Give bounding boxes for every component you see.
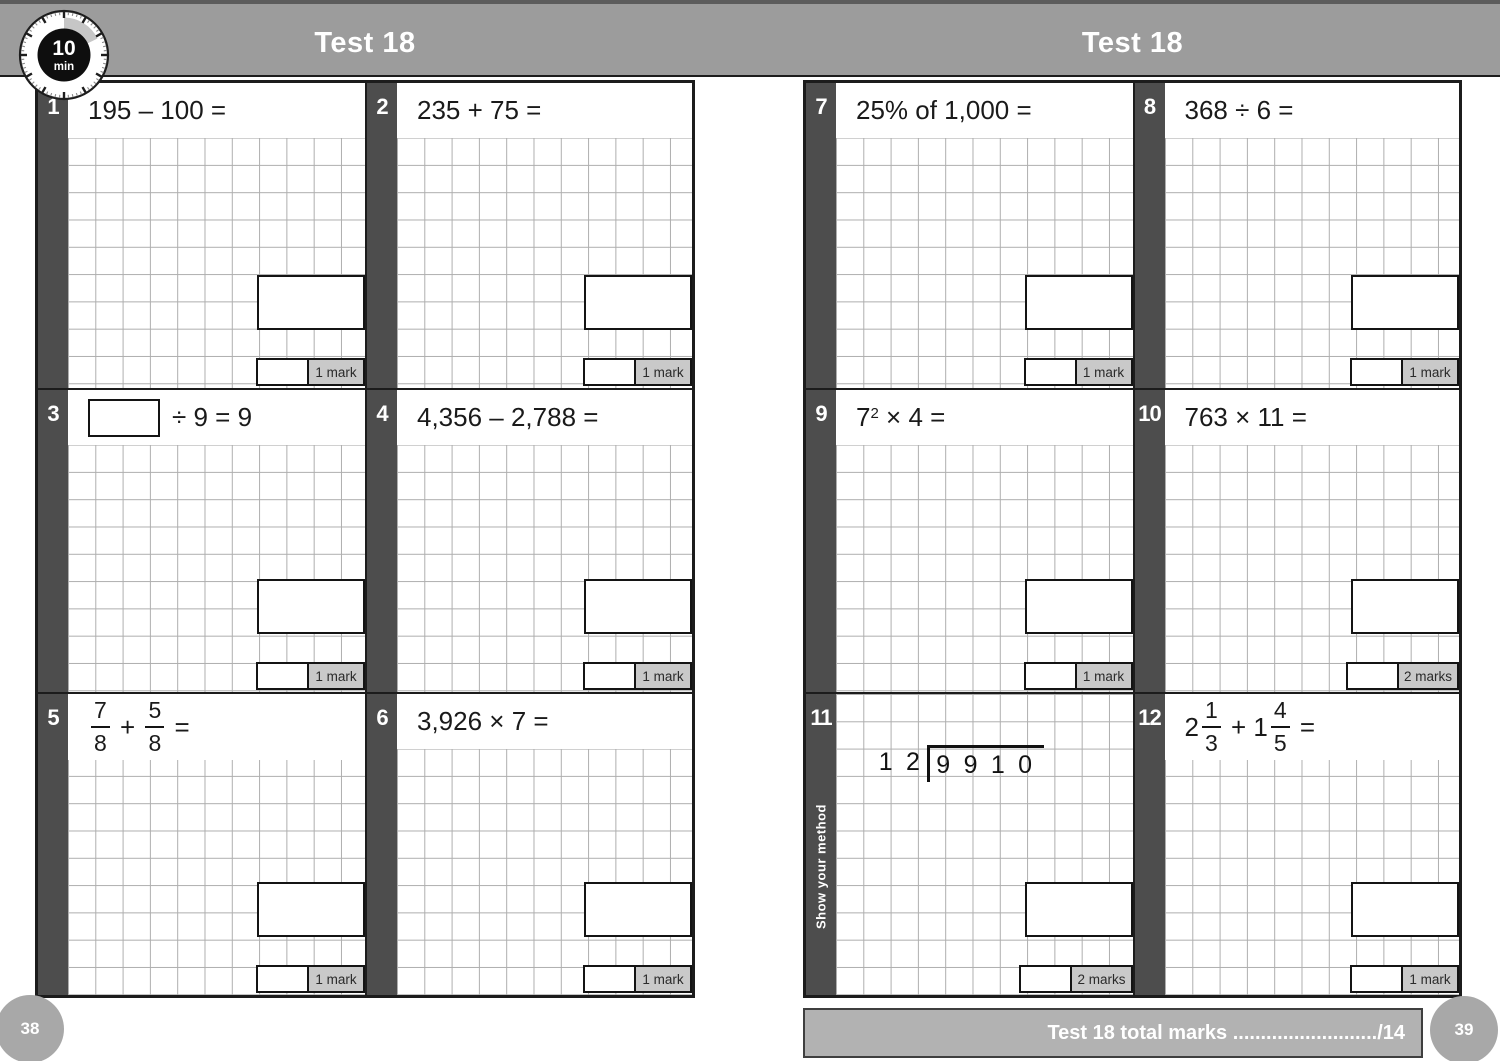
question-text-part: 4,356 – 2,788 = — [417, 402, 598, 433]
question-text-part: 72 — [856, 402, 879, 433]
mark-row: 1 mark — [256, 965, 365, 993]
side-label: Show your method — [814, 804, 829, 929]
fraction: 45 — [1271, 699, 1290, 755]
question-text-part: + — [113, 712, 143, 743]
question-cell-3: 3 ÷ 9 = 9 1 mark — [38, 388, 365, 692]
mark-label: 1 mark — [1077, 662, 1133, 690]
mark-label: 2 marks — [1072, 965, 1132, 993]
workbook-spread: Test 18 Test 18 10 min 1 195 – 100 = 1 m… — [0, 0, 1500, 1061]
dividend-digit: 1 — [984, 748, 1011, 782]
question-number-bar: 4 — [367, 390, 397, 692]
question-number: 8 — [1135, 83, 1165, 120]
answer-box[interactable] — [1351, 882, 1459, 937]
question-content: 235 + 75 = 1 mark — [397, 83, 692, 388]
test-title-right: Test 18 — [803, 27, 1462, 60]
question-text: 195 – 100 = — [68, 83, 365, 138]
question-cell-1: 1 195 – 100 = 1 mark — [38, 83, 365, 388]
question-content: 213 + 145 = 1 mark — [1165, 694, 1460, 995]
page-number-left: 38 — [0, 995, 64, 1061]
question-cell-2: 2 235 + 75 = 1 mark — [365, 83, 692, 388]
question-cell-9: 9 72 × 4 = 1 mark — [806, 388, 1133, 692]
question-cell-11: 11 Show your method 2 marks 129910 — [806, 692, 1133, 995]
question-text: 368 ÷ 6 = — [1165, 83, 1460, 138]
question-content: 195 – 100 = 1 mark — [68, 83, 365, 388]
timer-unit: min — [54, 61, 74, 73]
mark-label: 2 marks — [1399, 662, 1459, 690]
mark-row: 1 mark — [1350, 358, 1459, 386]
divisor-digit: 1 — [872, 745, 899, 782]
question-number-bar: 6 — [367, 694, 397, 995]
question-number: 7 — [806, 83, 836, 120]
page-number-right: 39 — [1430, 996, 1498, 1061]
question-text: 4,356 – 2,788 = — [397, 390, 692, 445]
question-text: 763 × 11 = — [1165, 390, 1460, 445]
mark-label: 1 mark — [309, 358, 365, 386]
question-content: ÷ 9 = 9 1 mark — [68, 390, 365, 692]
total-marks-bar: Test 18 total marks ....................… — [803, 1008, 1423, 1058]
timer-icon: 10 min — [18, 9, 110, 101]
question-content: 368 ÷ 6 = 1 mark — [1165, 83, 1460, 388]
mark-label: 1 mark — [636, 358, 692, 386]
question-number: 4 — [367, 390, 397, 427]
mark-label: 1 mark — [636, 662, 692, 690]
question-content: 2 marks 129910 — [836, 694, 1133, 995]
answer-box[interactable] — [1025, 882, 1133, 937]
question-text-part: × 4 = — [879, 402, 946, 433]
question-text-part: = — [1293, 712, 1315, 743]
question-text: 213 + 145 = — [1165, 694, 1460, 760]
total-marks-dots[interactable]: .......................... — [1227, 1022, 1377, 1045]
question-number-bar: 12 — [1135, 694, 1165, 995]
question-cell-10: 10 763 × 11 = 2 marks — [1133, 388, 1460, 692]
question-text-part: + — [1224, 712, 1254, 743]
mark-score-box[interactable] — [256, 358, 309, 386]
mark-score-box[interactable] — [256, 662, 309, 690]
mark-row: 1 mark — [256, 662, 365, 690]
question-text-part: ÷ 9 = 9 — [172, 402, 252, 433]
answer-box[interactable] — [584, 882, 692, 937]
answer-box[interactable] — [1025, 275, 1133, 330]
mark-row: 2 marks — [1019, 965, 1132, 993]
question-number: 3 — [38, 390, 68, 427]
mark-score-box[interactable] — [1346, 662, 1399, 690]
answer-box[interactable] — [1351, 579, 1459, 634]
question-text: 25% of 1,000 = — [836, 83, 1133, 138]
page-right: 7 25% of 1,000 = 1 mark 8 368 ÷ 6 = 1 ma… — [803, 80, 1462, 998]
mark-row: 1 mark — [1350, 965, 1459, 993]
question-number: 5 — [38, 694, 68, 731]
mark-label: 1 mark — [1403, 965, 1459, 993]
question-number-bar: 10 — [1135, 390, 1165, 692]
mark-row: 1 mark — [256, 358, 365, 386]
mark-score-box[interactable] — [1350, 965, 1403, 993]
question-number: 6 — [367, 694, 397, 731]
mark-label: 1 mark — [636, 965, 692, 993]
question-text-part: 235 + 75 = — [417, 95, 541, 126]
question-cell-6: 6 3,926 × 7 = 1 mark — [365, 692, 692, 995]
question-text-part: = — [167, 712, 189, 743]
question-text-part: 368 ÷ 6 = — [1185, 95, 1294, 126]
test-title-left: Test 18 — [35, 27, 695, 60]
question-number-bar: 3 — [38, 390, 68, 692]
mark-row: 1 mark — [583, 358, 692, 386]
mark-row: 1 mark — [583, 965, 692, 993]
answer-box[interactable] — [257, 579, 365, 634]
dividend-digit: 9 — [957, 748, 984, 782]
mark-label: 1 mark — [309, 965, 365, 993]
question-content: 25% of 1,000 = 1 mark — [836, 83, 1133, 388]
question-text-part: 3,926 × 7 = — [417, 706, 549, 737]
question-text: 235 + 75 = — [397, 83, 692, 138]
question-content: 763 × 11 = 2 marks — [1165, 390, 1460, 692]
question-text: 72 × 4 = — [836, 390, 1133, 445]
question-number-bar: 7 — [806, 83, 836, 388]
mixed-number: 145 — [1253, 699, 1292, 755]
mark-score-box[interactable] — [583, 965, 636, 993]
question-number: 10 — [1135, 390, 1165, 427]
answer-box[interactable] — [584, 275, 692, 330]
question-cell-8: 8 368 ÷ 6 = 1 mark — [1133, 83, 1460, 388]
question-number-bar: 5 — [38, 694, 68, 995]
total-marks-denominator: /14 — [1377, 1022, 1405, 1045]
total-marks-label: Test 18 total marks — [1047, 1022, 1227, 1045]
timer-minutes: 10 — [52, 37, 75, 60]
fraction: 78 — [91, 699, 110, 755]
answer-box[interactable] — [257, 275, 365, 330]
dividend-digit: 9 — [930, 748, 957, 782]
question-content: 4,356 – 2,788 = 1 mark — [397, 390, 692, 692]
question-number: 12 — [1135, 694, 1165, 731]
mark-label: 1 mark — [309, 662, 365, 690]
answer-box[interactable] — [584, 579, 692, 634]
working-grid[interactable] — [836, 694, 1133, 995]
mark-score-box[interactable] — [1350, 358, 1403, 386]
question-number-bar: 9 — [806, 390, 836, 692]
mark-row: 1 mark — [1024, 358, 1133, 386]
question-content: 72 × 4 = 1 mark — [836, 390, 1133, 692]
mark-score-box[interactable] — [1019, 965, 1072, 993]
mixed-number: 213 — [1185, 699, 1224, 755]
mark-label: 1 mark — [1403, 358, 1459, 386]
mark-score-box[interactable] — [1024, 662, 1077, 690]
mark-label: 1 mark — [1077, 358, 1133, 386]
long-division: 129910 — [872, 745, 1044, 782]
divisor-digit: 2 — [899, 745, 926, 782]
question-content: 3,926 × 7 = 1 mark — [397, 694, 692, 995]
question-cell-4: 4 4,356 – 2,788 = 1 mark — [365, 388, 692, 692]
question-number-bar: 2 — [367, 83, 397, 388]
question-number: 11 — [806, 694, 836, 731]
answer-box[interactable] — [1025, 579, 1133, 634]
question-cell-12: 12 213 + 145 = 1 mark — [1133, 692, 1460, 995]
fraction: 58 — [145, 699, 164, 755]
mark-score-box[interactable] — [583, 662, 636, 690]
division-bracket: 9910 — [927, 745, 1044, 782]
page-left: 1 195 – 100 = 1 mark 2 235 + 75 = 1 mark… — [35, 80, 695, 998]
question-text: ÷ 9 = 9 — [68, 390, 365, 445]
page-top-edge — [0, 0, 1500, 4]
question-content: 78 + 58 = 1 mark — [68, 694, 365, 995]
question-number-bar: 8 — [1135, 83, 1165, 388]
mark-row: 1 mark — [583, 662, 692, 690]
question-cell-5: 5 78 + 58 = 1 mark — [38, 692, 365, 995]
write-in-box[interactable] — [88, 399, 160, 437]
question-text: 78 + 58 = — [68, 694, 365, 760]
question-number-bar: 11 Show your method — [806, 694, 836, 995]
question-cell-7: 7 25% of 1,000 = 1 mark — [806, 83, 1133, 388]
mark-score-box[interactable] — [1024, 358, 1077, 386]
fraction: 13 — [1202, 699, 1221, 755]
dividend-digit: 0 — [1011, 748, 1038, 782]
question-text: 3,926 × 7 = — [397, 694, 692, 749]
answer-box[interactable] — [257, 882, 365, 937]
mark-score-box[interactable] — [583, 358, 636, 386]
mark-score-box[interactable] — [256, 965, 309, 993]
mark-row: 1 mark — [1024, 662, 1133, 690]
question-text-part: 763 × 11 = — [1185, 402, 1307, 433]
answer-box[interactable] — [1351, 275, 1459, 330]
question-number-bar: 1 — [38, 83, 68, 388]
mark-row: 2 marks — [1346, 662, 1459, 690]
question-number: 9 — [806, 390, 836, 427]
question-number: 2 — [367, 83, 397, 120]
question-text-part: 25% of 1,000 = — [856, 95, 1032, 126]
